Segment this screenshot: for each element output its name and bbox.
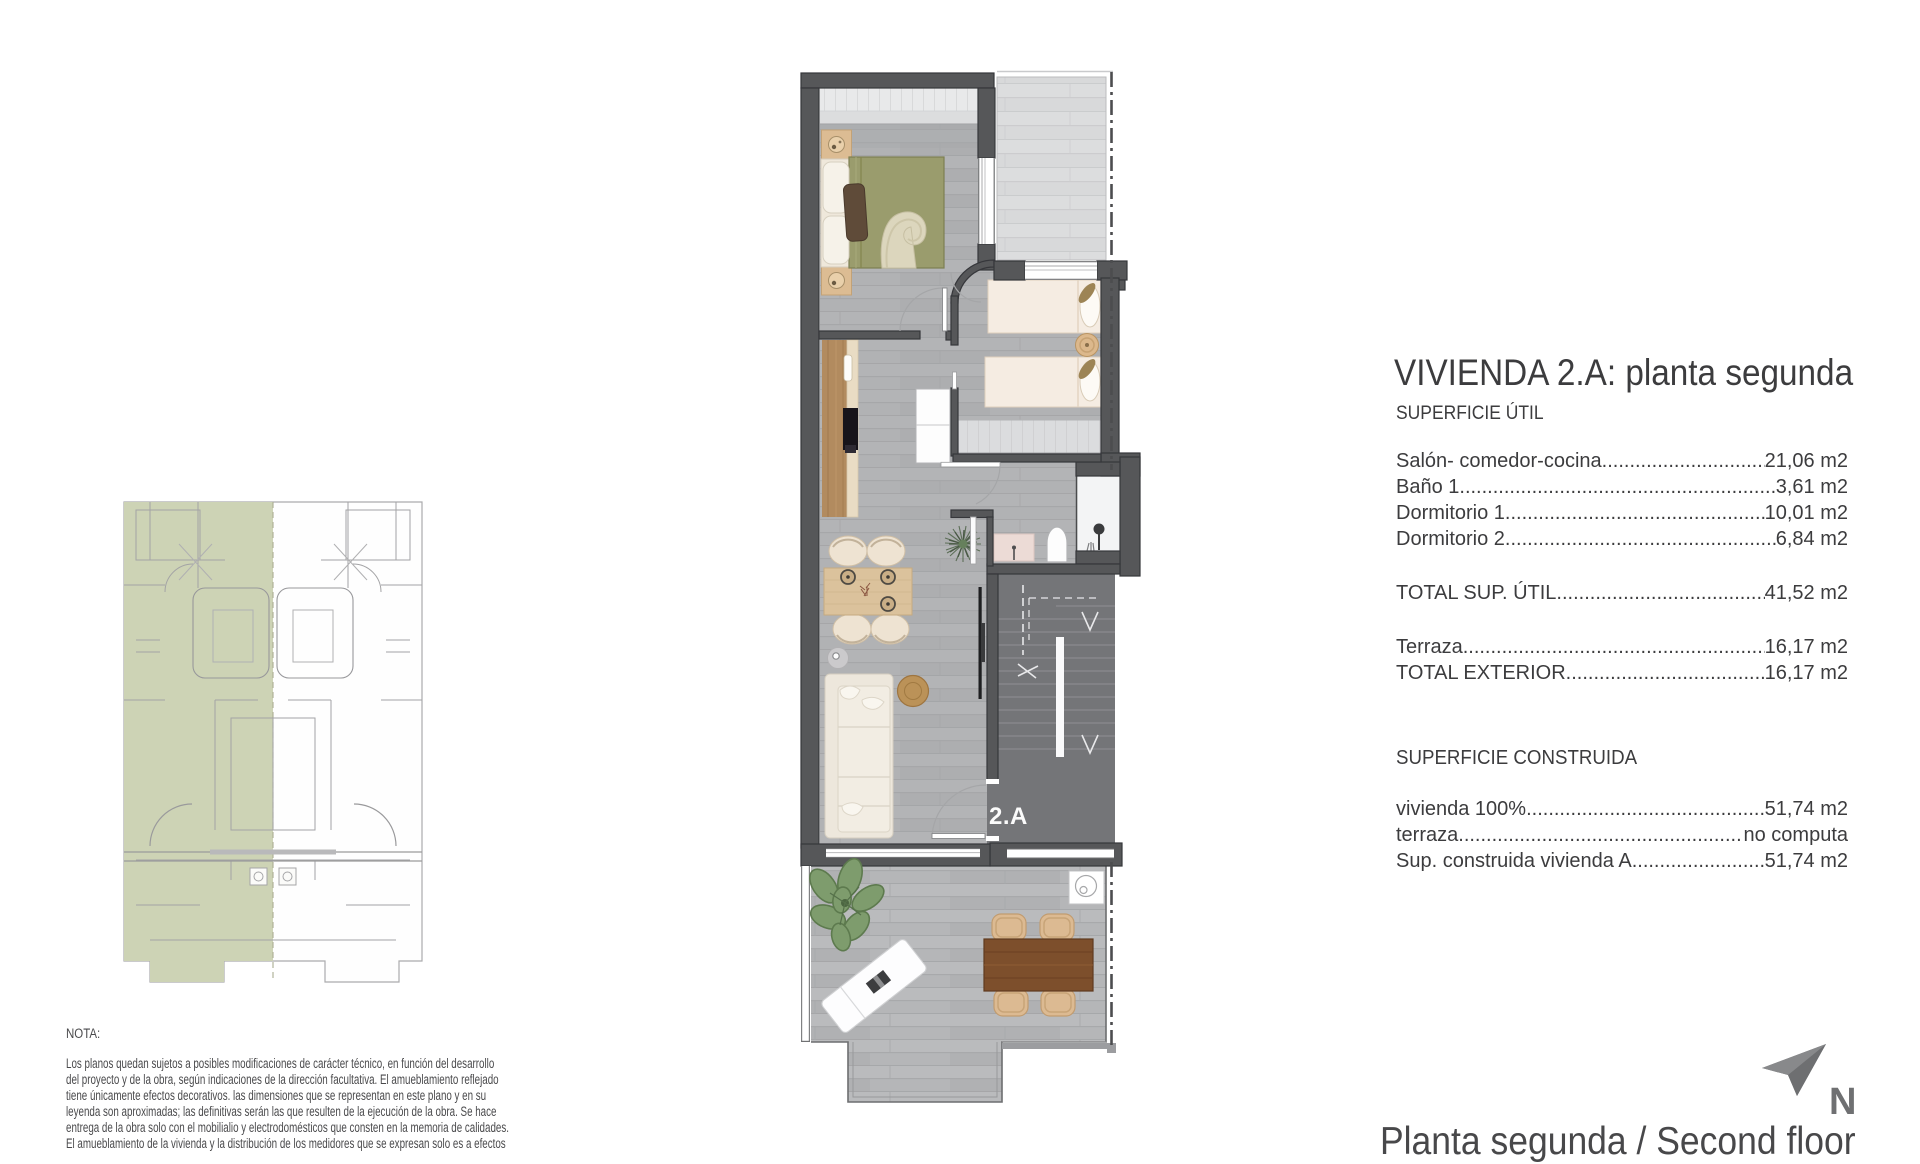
svg-text:2.A: 2.A: [989, 803, 1028, 830]
